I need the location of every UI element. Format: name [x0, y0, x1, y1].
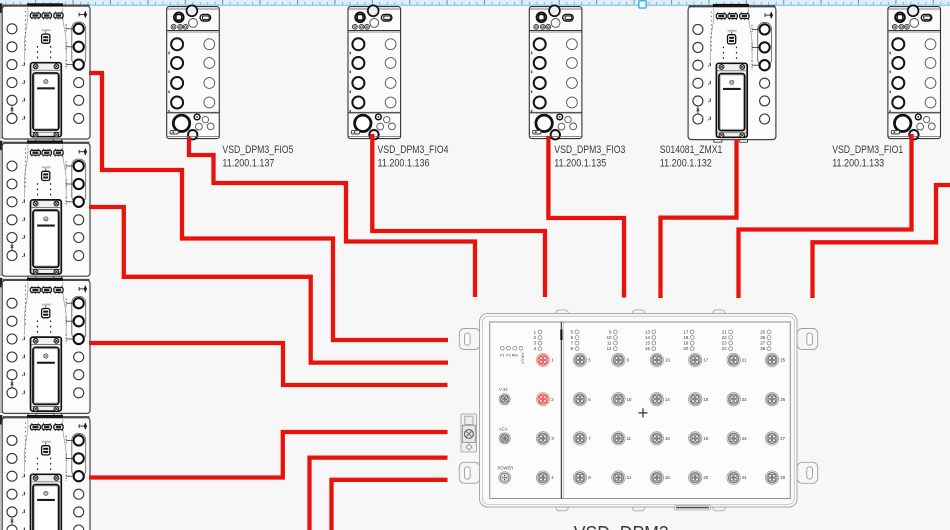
svg-text:P1: P1: [500, 354, 505, 358]
svg-text:11: 11: [627, 436, 632, 441]
svg-text:16: 16: [645, 346, 650, 351]
svg-text:18: 18: [703, 397, 708, 402]
svg-text:22: 22: [742, 397, 747, 402]
svg-text:10: 10: [607, 335, 612, 340]
svg-text:25: 25: [780, 358, 785, 363]
svg-text:27: 27: [780, 436, 785, 441]
svg-text:V 24: V 24: [499, 387, 508, 392]
svg-text:VSD_DPM3_FIO3: VSD_DPM3_FIO3: [554, 144, 625, 156]
svg-text:12: 12: [627, 475, 632, 480]
svg-text:15: 15: [665, 436, 670, 441]
svg-text:VSD_DPM3_FIO1: VSD_DPM3_FIO1: [832, 144, 903, 156]
svg-text:VSD_DPM3: VSD_DPM3: [574, 523, 669, 530]
svg-text:26: 26: [780, 397, 785, 402]
svg-text:S014081_ZMX1: S014081_ZMX1: [660, 144, 723, 156]
svg-text:11.200.1.135: 11.200.1.135: [554, 157, 606, 169]
svg-text:15: 15: [645, 341, 650, 346]
svg-text:11.200.1.132: 11.200.1.132: [660, 157, 712, 169]
svg-text:P2: P2: [506, 354, 511, 358]
svg-text:13: 13: [645, 329, 650, 334]
svg-text:25: 25: [760, 329, 765, 334]
svg-text:VSD_DPM3_FIO5: VSD_DPM3_FIO5: [222, 144, 293, 156]
svg-text:12: 12: [607, 346, 612, 351]
svg-text:11: 11: [607, 341, 612, 346]
svg-text:17: 17: [703, 358, 708, 363]
svg-text:19: 19: [703, 436, 708, 441]
svg-text:23: 23: [722, 341, 727, 346]
svg-text:13: 13: [665, 358, 670, 363]
svg-text:22: 22: [722, 335, 727, 340]
svg-text:28: 28: [760, 346, 765, 351]
svg-text:10: 10: [627, 397, 632, 402]
svg-text:11.200.1.133: 11.200.1.133: [832, 157, 884, 169]
svg-text:21: 21: [742, 358, 747, 363]
svg-text:23: 23: [742, 436, 747, 441]
svg-text:ACA: ACA: [499, 426, 508, 431]
svg-text:24: 24: [742, 475, 747, 480]
svg-text:24: 24: [722, 346, 727, 351]
svg-text:21: 21: [722, 329, 727, 334]
svg-text:RM: RM: [512, 354, 518, 358]
svg-text:20: 20: [703, 475, 708, 480]
svg-text:POWER: POWER: [498, 466, 514, 471]
svg-text:20: 20: [683, 346, 688, 351]
svg-text:18: 18: [683, 335, 688, 340]
svg-text:14: 14: [665, 397, 670, 402]
svg-text:17: 17: [683, 329, 688, 334]
svg-text:26: 26: [760, 335, 765, 340]
svg-text:27: 27: [760, 341, 765, 346]
svg-text:VSD_DPM3_FIO4: VSD_DPM3_FIO4: [378, 144, 449, 156]
svg-text:19: 19: [683, 341, 688, 346]
svg-text:16: 16: [665, 475, 670, 480]
svg-text:14: 14: [645, 335, 650, 340]
svg-text:28: 28: [780, 475, 785, 480]
svg-text:11.200.1.136: 11.200.1.136: [378, 157, 430, 169]
svg-text:FAULT: FAULT: [521, 353, 525, 365]
svg-text:11.200.1.137: 11.200.1.137: [222, 157, 274, 169]
